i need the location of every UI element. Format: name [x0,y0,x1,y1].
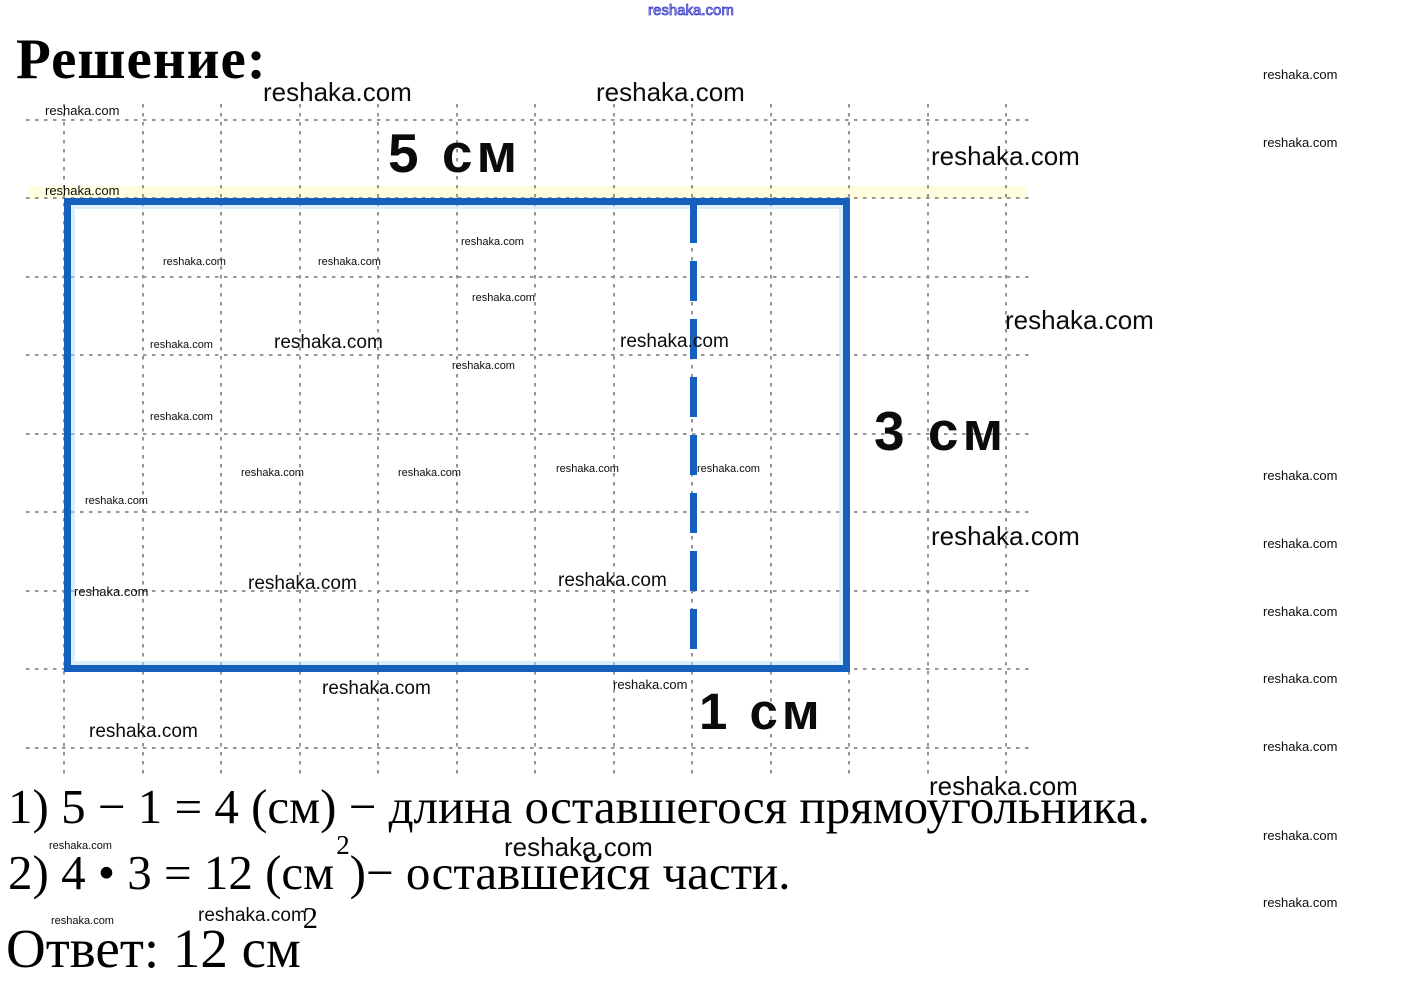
height-label: 3 см [874,404,1007,459]
solution-step-2: 2) 4 • 3 = 12 (см2)− оставшейся части. [8,847,791,898]
superscript: 2 [303,901,318,935]
dashed-cut-line [690,203,697,653]
grid-line-horizontal [26,747,1030,749]
page: Решение: 5 см 3 см 1 см 1) 5 − 1 = 4 (см… [0,0,1402,989]
grid-line-horizontal [26,119,1030,121]
answer-line: Ответ: 12 см2 [6,920,318,978]
answer-text: Ответ: 12 см [6,918,301,979]
solution-step-1: 1) 5 − 1 = 4 (см) − длина оставшегося пр… [8,781,1150,832]
width-label: 5 см [388,126,521,181]
cut-width-label: 1 см [699,686,824,737]
superscript: 2 [336,830,349,860]
step2-text: 2) 4 • 3 = 12 (см [8,845,334,900]
page-title: Решение: [16,30,267,90]
rectangle-outline [64,198,850,672]
step2-text-after: )− оставшейся части. [350,845,791,900]
